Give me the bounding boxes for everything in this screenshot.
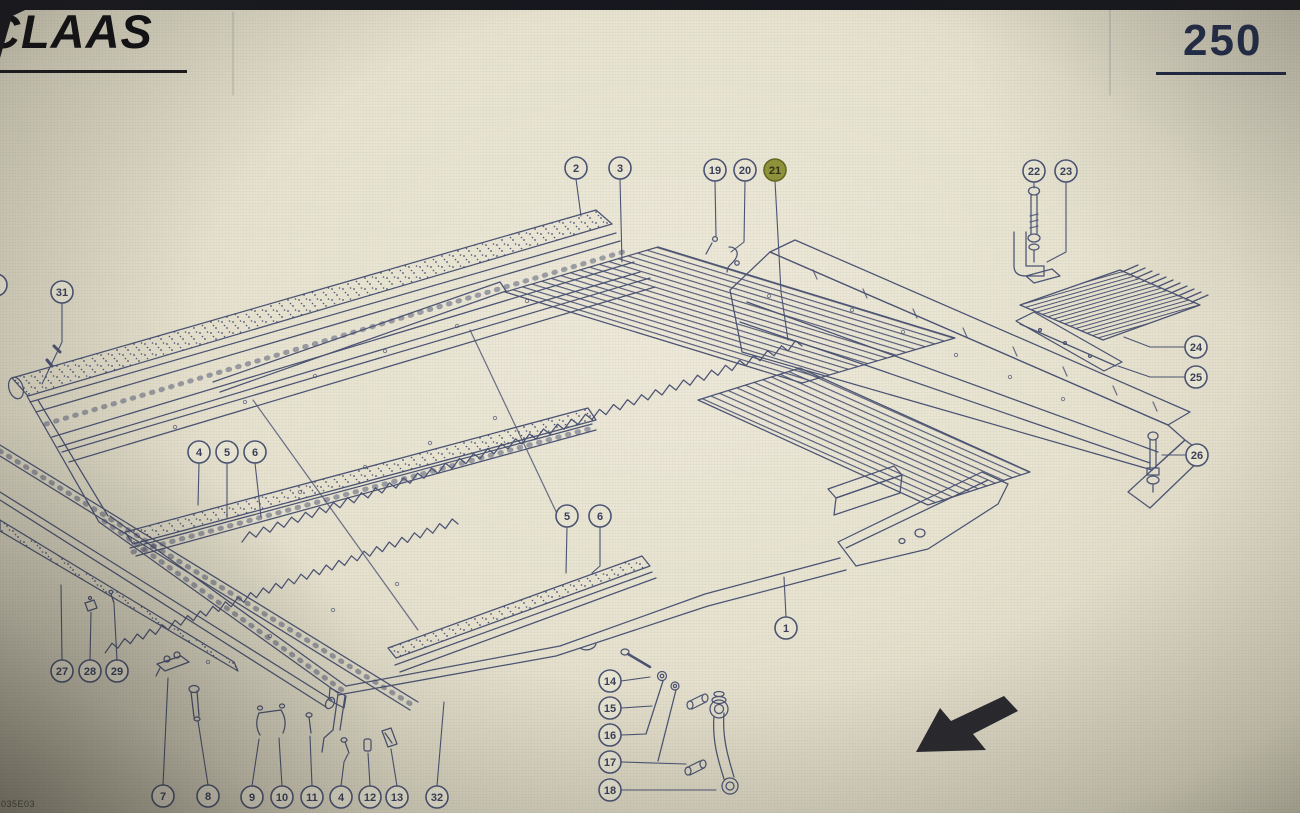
callout-edge-34[interactable] (0, 274, 7, 296)
callout-20-3[interactable]: 20 (731, 159, 756, 252)
svg-text:4: 4 (196, 447, 203, 459)
doc-code: 035E03 (1, 799, 35, 809)
svg-text:10: 10 (276, 792, 288, 804)
callout-12-31[interactable]: 12 (359, 753, 381, 808)
callout-19-2[interactable]: 19 (704, 159, 726, 236)
grate-24 (1016, 265, 1208, 371)
direction-arrow (916, 696, 1018, 752)
parts-diagram: 2319202122232425263145656127282914151617… (0, 0, 1300, 813)
svg-text:17: 17 (604, 757, 616, 769)
callout-8-26[interactable]: 8 (197, 721, 219, 807)
svg-text:24: 24 (1190, 342, 1203, 354)
callout-22-5[interactable]: 22 (1023, 160, 1045, 188)
svg-text:28: 28 (84, 666, 96, 678)
callout-26-9[interactable]: 26 (1162, 444, 1208, 466)
svg-text:6: 6 (597, 511, 603, 523)
svg-text:5: 5 (564, 511, 570, 523)
callout-32-33[interactable]: 32 (426, 702, 448, 808)
svg-text:14: 14 (604, 676, 617, 688)
callout-25-8[interactable]: 25 (1118, 366, 1207, 388)
callout-27-17[interactable]: 27 (51, 585, 73, 682)
svg-text:13: 13 (391, 792, 403, 804)
callout-3-1[interactable]: 3 (609, 157, 631, 262)
svg-text:29: 29 (111, 666, 123, 678)
callout-13-32[interactable]: 13 (386, 749, 408, 808)
callout-2-0[interactable]: 2 (565, 157, 587, 216)
svg-text:5: 5 (224, 447, 230, 459)
svg-text:15: 15 (604, 703, 616, 715)
svg-text:27: 27 (56, 666, 68, 678)
callout-17-23[interactable]: 17 (599, 751, 686, 773)
callout-28-18[interactable]: 28 (79, 612, 101, 682)
callout-5-14[interactable]: 5 (556, 505, 578, 573)
callout-1-16[interactable]: 1 (775, 577, 797, 639)
svg-text:3: 3 (617, 163, 623, 175)
callout-18-24[interactable]: 18 (599, 779, 716, 801)
top-rail-assembly (6, 210, 640, 447)
floor-deck (698, 368, 1030, 505)
bracket-22-23 (1014, 187, 1060, 283)
callout-15-21[interactable]: 15 (599, 697, 652, 719)
screen-top-edge (0, 0, 1300, 10)
svg-text:23: 23 (1060, 166, 1072, 178)
svg-text:20: 20 (739, 165, 751, 177)
svg-text:2: 2 (573, 163, 579, 175)
svg-text:22: 22 (1028, 166, 1040, 178)
callout-9-27[interactable]: 9 (241, 739, 263, 808)
callout-23-6[interactable]: 23 (1047, 160, 1077, 262)
svg-text:4: 4 (338, 792, 345, 804)
svg-text:26: 26 (1191, 450, 1203, 462)
svg-text:1: 1 (783, 623, 789, 635)
svg-text:16: 16 (604, 730, 616, 742)
svg-text:18: 18 (604, 785, 616, 797)
svg-text:12: 12 (364, 792, 376, 804)
callout-10-28[interactable]: 10 (271, 738, 293, 808)
svg-text:9: 9 (249, 792, 255, 804)
callout-29-19[interactable]: 29 (106, 604, 128, 682)
svg-text:6: 6 (252, 447, 258, 459)
callout-16-22[interactable]: 16 (599, 724, 646, 746)
svg-text:21: 21 (769, 165, 781, 177)
svg-text:25: 25 (1190, 372, 1202, 384)
parts-catalog-page: CLAAS 250 (0, 0, 1300, 813)
callout-24-7[interactable]: 24 (1124, 336, 1207, 358)
callout-7-25[interactable]: 7 (152, 678, 174, 807)
fasteners-14-18 (621, 649, 708, 775)
callout-14-20[interactable]: 14 (599, 670, 650, 692)
link-arm (710, 692, 738, 795)
header-rules (233, 8, 1110, 95)
sawtooth-strips (105, 341, 802, 653)
svg-text:11: 11 (306, 792, 318, 804)
callout-11-29[interactable]: 11 (301, 736, 323, 808)
svg-text:7: 7 (160, 791, 166, 803)
callout-4-11[interactable]: 4 (188, 441, 210, 505)
callouts-layer: 2319202122232425263145656127282914151617… (0, 157, 1208, 808)
svg-text:19: 19 (709, 165, 721, 177)
svg-text:32: 32 (431, 792, 443, 804)
svg-text:8: 8 (205, 791, 211, 803)
callout-6-15[interactable]: 6 (589, 505, 611, 573)
callout-4-30[interactable]: 4 (330, 754, 352, 808)
svg-text:31: 31 (56, 287, 68, 299)
